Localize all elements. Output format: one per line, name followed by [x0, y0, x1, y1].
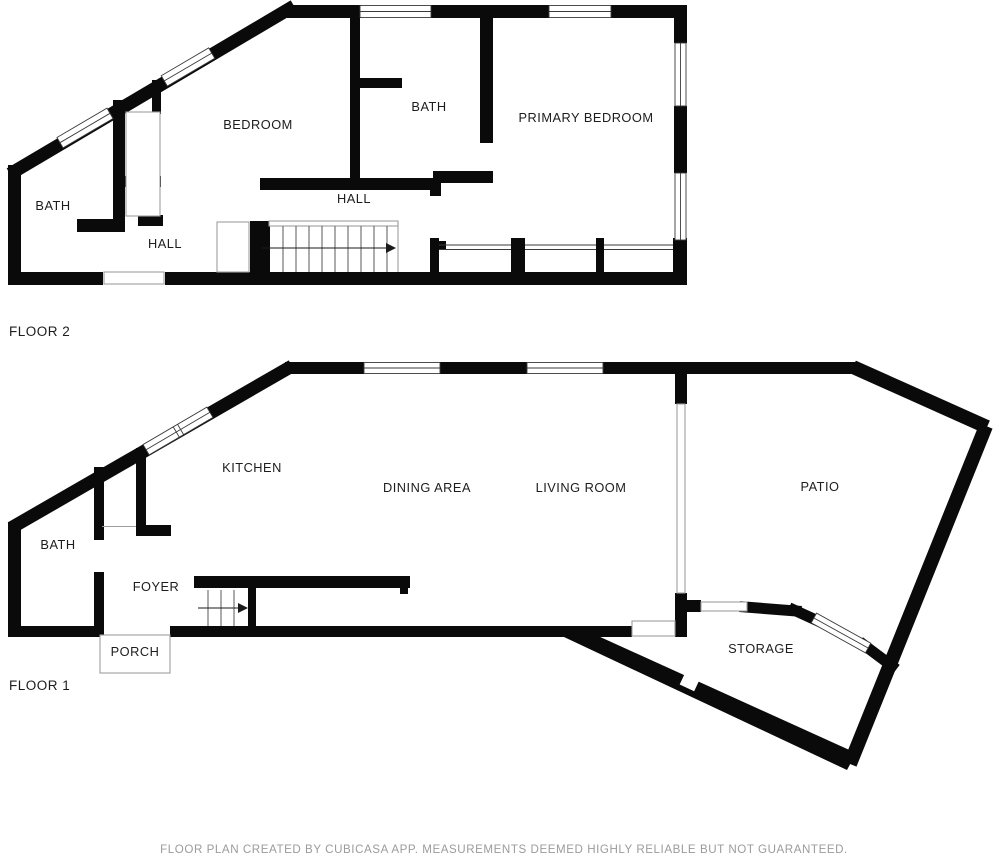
window-icon	[549, 6, 611, 18]
room-label-hall-lower: HALL	[148, 236, 182, 251]
window-icon	[811, 613, 871, 653]
room-label-dining-area: DINING AREA	[383, 480, 471, 495]
room-label-primary-bedroom: PRIMARY BEDROOM	[518, 110, 653, 125]
room-label-foyer: FOYER	[133, 579, 180, 594]
window-icon	[364, 363, 440, 374]
disclaimer-text: FLOOR PLAN CREATED BY CUBICASA APP. MEAS…	[0, 843, 1008, 856]
room-label-bedroom: BEDROOM	[223, 117, 293, 132]
floor2-interior-walls	[77, 18, 687, 272]
exterior-door	[632, 621, 675, 636]
window-icon	[527, 363, 603, 374]
window-icon	[57, 108, 113, 148]
floor1-interior-walls	[94, 448, 410, 637]
stair-direction-arrow-icon	[262, 243, 396, 253]
room-label-storage: STORAGE	[728, 641, 794, 656]
room-label-kitchen: KITCHEN	[222, 460, 282, 475]
window-icon	[675, 43, 686, 106]
stair-direction-arrow-icon	[198, 603, 248, 613]
floor1-title: FLOOR 1	[9, 678, 70, 693]
room-label-patio: PATIO	[801, 479, 840, 494]
room-label-living-room: LIVING ROOM	[536, 480, 627, 495]
bottom-diagonal-wall	[564, 626, 856, 770]
room-label-hall-upper: HALL	[337, 191, 371, 206]
floor1-plan: BATH KITCHEN FOYER PORCH DINING AREA LIV…	[0, 350, 1008, 790]
window-icon	[143, 407, 213, 455]
window-icon	[675, 173, 686, 240]
floor1-exterior-walls	[8, 362, 858, 637]
floor2-title: FLOOR 2	[9, 324, 70, 339]
floor-plan-page: BATH HALL BEDROOM BATH PRIMARY BEDROOM H…	[0, 0, 1008, 864]
floor2-stairs	[262, 226, 396, 272]
floor2-window-wall-glass	[439, 245, 673, 250]
room-label-bath-upper: BATH	[411, 99, 446, 114]
window-icon	[161, 48, 215, 86]
room-label-bath: BATH	[40, 537, 75, 552]
floor1-stairs	[198, 590, 248, 626]
room-label-bath: BATH	[35, 198, 70, 213]
room-label-porch: PORCH	[111, 644, 160, 659]
floor2-plan: BATH HALL BEDROOM BATH PRIMARY BEDROOM H…	[0, 0, 1008, 350]
window-icon	[360, 6, 431, 18]
floor1-diagonal-walls	[11, 366, 987, 770]
